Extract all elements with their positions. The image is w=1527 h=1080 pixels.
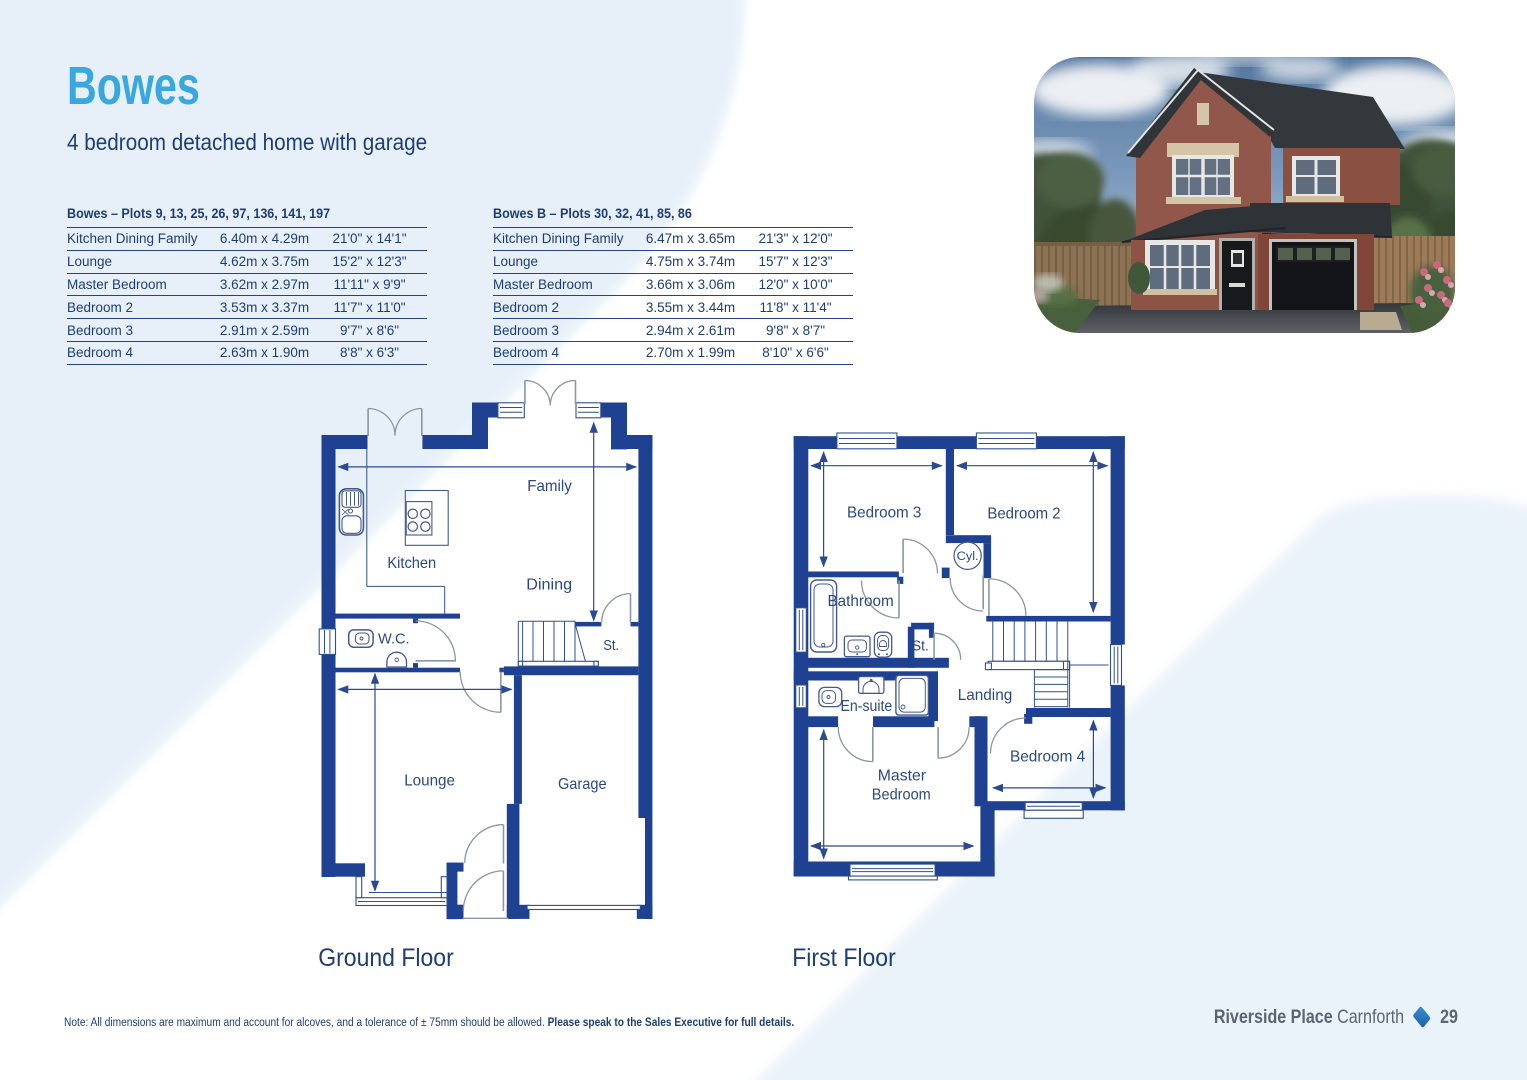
svg-text:W.C.: W.C. (378, 631, 410, 648)
svg-text:Kitchen: Kitchen (387, 555, 436, 572)
svg-text:Lounge: Lounge (404, 772, 455, 789)
svg-text:Landing: Landing (958, 687, 1013, 704)
svg-text:Bedroom 4: Bedroom 4 (1010, 749, 1085, 766)
svg-text:En-suite: En-suite (841, 698, 893, 715)
svg-text:St.: St. (603, 637, 619, 654)
svg-text:Bedroom: Bedroom (872, 787, 931, 804)
svg-text:Bedroom 2: Bedroom 2 (987, 505, 1060, 522)
svg-text:Family: Family (527, 478, 572, 495)
svg-text:Dining: Dining (526, 576, 572, 593)
svg-text:Bathroom: Bathroom (828, 593, 894, 610)
svg-text:Cyl.: Cyl. (957, 551, 979, 563)
svg-text:Bedroom 3: Bedroom 3 (847, 504, 921, 521)
svg-text:Garage: Garage (558, 776, 607, 793)
svg-text:St.: St. (912, 638, 929, 655)
svg-text:Master: Master (878, 767, 927, 784)
